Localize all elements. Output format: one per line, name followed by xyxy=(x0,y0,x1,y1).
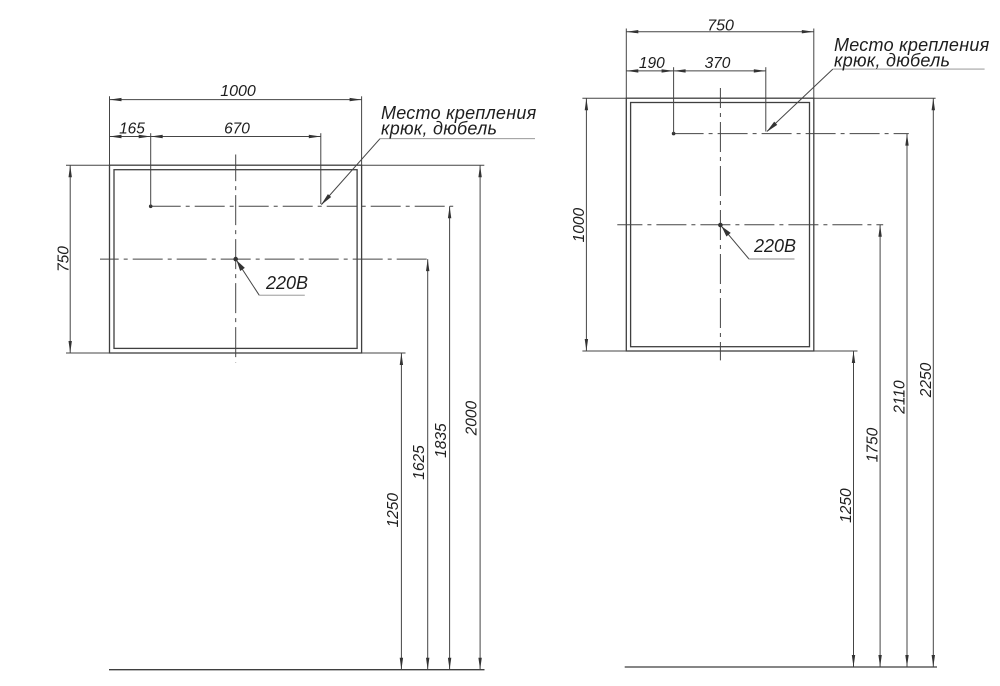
svg-text:1250: 1250 xyxy=(385,493,402,528)
svg-text:750: 750 xyxy=(55,246,72,272)
svg-text:190: 190 xyxy=(639,55,665,72)
svg-text:2250: 2250 xyxy=(918,362,935,398)
svg-text:2000: 2000 xyxy=(464,400,481,436)
svg-text:750: 750 xyxy=(707,17,734,34)
svg-text:670: 670 xyxy=(224,120,250,137)
svg-text:1750: 1750 xyxy=(865,427,882,462)
svg-text:1250: 1250 xyxy=(838,488,855,523)
svg-text:1625: 1625 xyxy=(411,445,428,480)
svg-text:370: 370 xyxy=(705,55,731,72)
svg-text:1000: 1000 xyxy=(571,207,588,242)
svg-text:220В: 220В xyxy=(265,273,308,293)
svg-text:крюк, дюбель: крюк, дюбель xyxy=(834,51,950,71)
svg-text:2110: 2110 xyxy=(892,380,909,415)
svg-text:165: 165 xyxy=(119,120,145,137)
svg-text:крюк, дюбель: крюк, дюбель xyxy=(381,119,497,139)
svg-text:1835: 1835 xyxy=(433,423,450,458)
svg-text:220В: 220В xyxy=(753,236,796,256)
svg-text:1000: 1000 xyxy=(220,83,256,100)
